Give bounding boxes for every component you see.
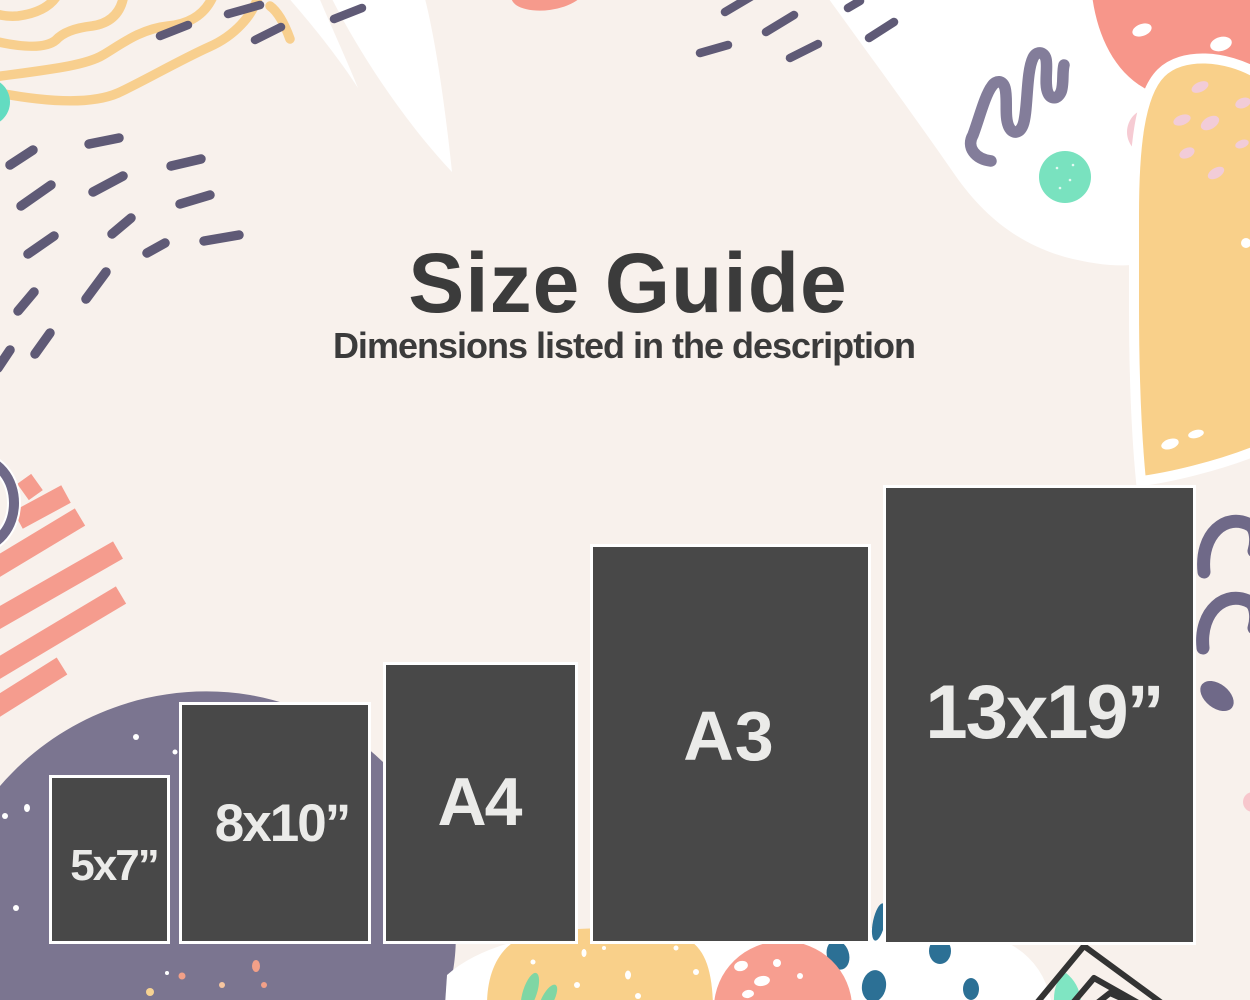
svg-text:A4: A4 <box>438 764 523 840</box>
svg-text:13x19”: 13x19” <box>925 670 1162 755</box>
svg-text:A3: A3 <box>683 697 774 775</box>
svg-text:5x7”: 5x7” <box>70 841 157 890</box>
svg-text:Size Guide: Size Guide <box>408 236 847 330</box>
svg-text:8x10”: 8x10” <box>215 794 349 853</box>
svg-text:Dimensions listed in the descr: Dimensions listed in the description <box>333 325 915 366</box>
